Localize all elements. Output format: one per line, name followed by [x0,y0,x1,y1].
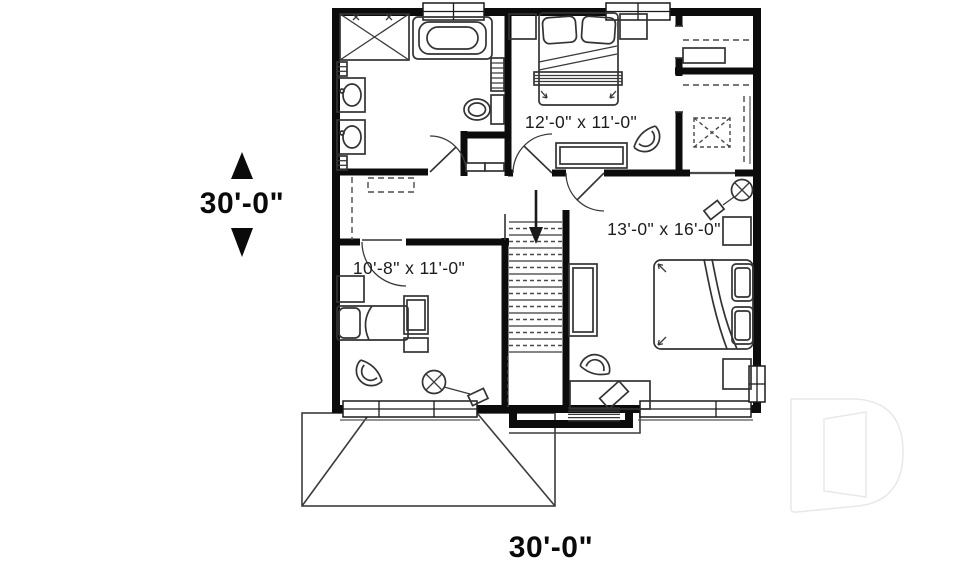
bathroom [337,14,504,170]
hallway [352,177,414,240]
bathtub [413,17,492,59]
nightstand [509,14,536,39]
desk-chair [579,351,613,377]
floor-plan-page: 12'-0" x 11'-0" [0,0,960,569]
bedroom-top: 12'-0" x 11'-0" [509,13,666,168]
dresser [404,296,428,352]
horizontal-dimension: 30'-0" [509,531,593,564]
nightstand [723,217,751,245]
nightstand [337,276,364,302]
dresser [556,143,627,168]
window-bedroom-top [606,3,670,20]
armchair [350,357,385,392]
depth-dimension-label: 30'-0" [200,187,284,220]
width-dimension-label: 30'-0" [509,531,593,564]
arrow-down-icon [231,228,253,257]
closet-small [683,40,753,63]
bedroom-top-size-label: 12'-0" x 11'-0" [525,112,637,132]
shower [340,14,409,60]
windows [340,3,765,420]
bath-cabinet [491,58,504,91]
vanity-sink-1 [337,78,365,112]
master-bedroom-door [566,173,604,211]
floor-plan-drawing: 12'-0" x 11'-0" [0,0,960,569]
window-bedroom-left-bottom [340,401,480,420]
desk [570,381,650,409]
nightstand [723,359,751,389]
window-master-bottom [638,401,753,420]
vanity-sink-2 [337,120,365,154]
single-bed [337,306,408,340]
ceiling-fan [704,180,753,220]
vertical-dimension: 30'-0" [200,152,284,257]
walk-in-closet [683,85,753,164]
double-bed [534,13,622,105]
arrow-up-icon [231,152,253,179]
toilet [464,95,504,124]
stair-down-arrow [529,190,543,244]
dresser [569,264,597,336]
drummond-d-logo-watermark [791,399,903,512]
double-bed [654,259,753,349]
blanket-band [534,72,622,85]
bedroom-top-door [513,134,552,173]
bedroom-left: 10'-8" x 11'-0" [337,258,488,406]
bedroom-left-size-label: 10'-8" x 11'-0" [353,258,465,278]
master-bedroom: 13'-0" x 16'-0" [569,180,753,410]
linen-closet-bifold-doors [466,163,504,171]
master-bedroom-size-label: 13'-0" x 16'-0" [607,219,721,239]
